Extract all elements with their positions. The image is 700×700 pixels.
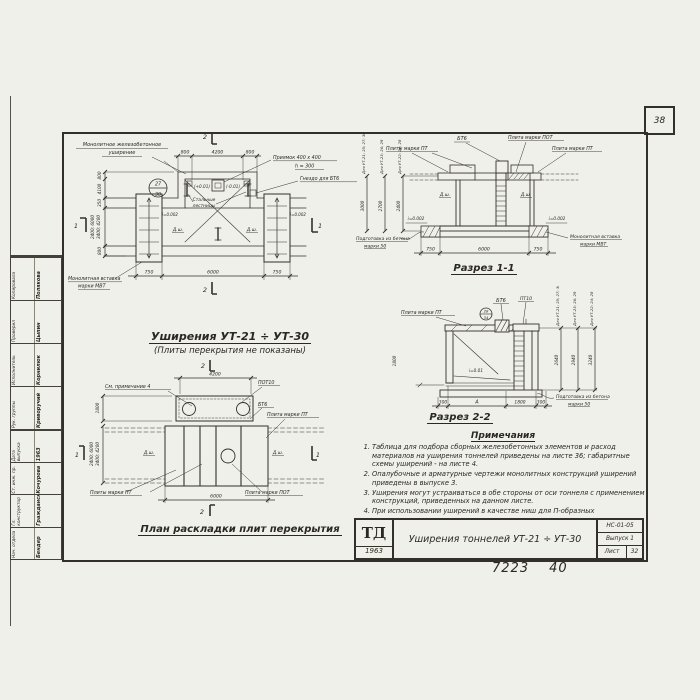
detail-callout-top: 28	[484, 309, 489, 314]
note-text: Таблица для подбора сборных железобетонн…	[372, 443, 646, 469]
label-concrete-prep-line2: марки 50	[568, 402, 590, 408]
label-pit: Приямок 400 х 400	[273, 155, 321, 161]
label-steel-ladders-line2: лестницы	[192, 204, 216, 209]
section-mark-1-left: 1	[75, 451, 79, 459]
notes-title: Примечания	[360, 431, 646, 441]
stamp-lower-block: Нач. отдела Бендер Гл. конструктор Гражд…	[11, 429, 61, 559]
section-mark-2-top: 2	[203, 133, 207, 141]
stamp-cell: Проверил Цыпин	[11, 300, 61, 343]
height-value-3: 2400	[396, 200, 401, 211]
label-steel-ladders-line1: Стальные	[193, 197, 216, 203]
label-slabs-pt: Плиты марки ПТ	[90, 490, 133, 496]
dim-left-800a: 800	[97, 171, 102, 179]
plan-top-title: Уширения УТ-21 ÷ УТ-30	[130, 330, 330, 343]
title-block-codes: НС-01-05 Выпуск 1 Лист 32	[598, 520, 642, 558]
slope-label: i=0.01	[469, 368, 483, 373]
detail-callout-bottom: 34	[484, 315, 489, 320]
stamp-name: Полякова	[35, 258, 61, 300]
note-text: Опалубочные и арматурные чертежи монолит…	[372, 470, 646, 487]
label-see-note-4: См. примечание 4	[105, 384, 150, 390]
section-2-2-title: Разрез 2-2	[410, 412, 510, 423]
title-block: ТД 1963 Уширения тоннелей УТ-21 ÷ УТ-30 …	[354, 518, 644, 560]
slab-layout-plan-drawing: См. примечание 4 4200 ПОТ10 БТ6 Плита ма…	[70, 358, 366, 520]
stamp-role: Исполнитель	[11, 344, 35, 386]
section-1-1-drawing: БТ6 Плита марки ПОТ Плиты марки ПТ Плита…	[356, 128, 648, 278]
dim-tunnel-width-b: 3400; 4200	[96, 215, 101, 239]
sheet-corner-number-box: 38	[644, 106, 675, 135]
dim-left-height: 1800	[392, 355, 397, 366]
height-option-label-3: Для УТ-22; 24; 28	[589, 291, 594, 327]
label-monolithic-insert-line2: марки МВТ	[78, 284, 107, 290]
section-mark-1-right: 1	[316, 451, 320, 459]
drawing-title: Уширения тоннелей УТ-21 ÷ УТ-30	[394, 520, 598, 558]
dim-tunnel-width-a: 2400; 6000	[89, 442, 94, 466]
section-mark-1-right: 1	[318, 222, 322, 230]
label-socket-bt6: Гнездо для БТ6	[300, 176, 339, 182]
dim-top-800-right: 800	[246, 149, 255, 155]
stamp-name: Гражданский	[35, 496, 61, 527]
deformation-joint-left: Д.ш.	[172, 227, 183, 233]
dim-750-left: 750	[426, 247, 435, 253]
monolithic-insert-right-plan	[264, 194, 290, 262]
dim-750-right: 750	[534, 247, 543, 253]
label-pt10: ПТ10	[520, 296, 532, 302]
dim-top-4200: 4200	[212, 149, 224, 155]
dim-top-800-left: 800	[181, 149, 190, 155]
plan-top-subtitle: (Плиты перекрытия не показаны)	[120, 346, 340, 356]
dim-tunnel-width-b: 3400; 4200	[95, 442, 100, 466]
dim-bottom-6000: 6000	[207, 269, 219, 275]
height-option-label-1: Для УТ-21; 25; 27; 30	[555, 286, 560, 327]
slope-left: i=0.002	[162, 212, 178, 217]
sheet-number-row: Лист 32	[598, 546, 642, 558]
issue-number: Выпуск 1	[598, 533, 642, 546]
label-slab-pot: Плита марки ПОТ	[508, 135, 554, 141]
stamp-role: Копировала	[11, 258, 35, 300]
section-mark-1-left: 1	[74, 222, 78, 230]
section-2-2-drawing: Плита марки ПТ БТ6 ПТ10 28 34 i=0.01 300…	[356, 286, 648, 426]
label-bt6: БТ6	[457, 136, 467, 142]
deformation-joint-right: Д.ш.	[520, 192, 531, 198]
stamp-role: Рук. группы	[11, 387, 35, 429]
dim-300-right: 300	[537, 400, 546, 406]
slope-right: i=0.002	[290, 212, 306, 217]
corner-number: 38	[654, 116, 665, 126]
height-option-label-2: Для УТ-23; 26; 29	[572, 291, 577, 327]
stamp-role: Ст. инж. пр.	[11, 463, 35, 494]
label-slab-pot: Плита марки ПОТ	[245, 490, 291, 496]
dim-bottom-750-left: 750	[145, 269, 154, 275]
dim-left-800b: 800	[97, 247, 102, 255]
slab-plan-linework	[105, 396, 325, 486]
stamp-cell: Исполнитель Корнилюк	[11, 343, 61, 386]
label-bt6: БТ6	[258, 402, 267, 408]
section1-linework	[406, 161, 578, 237]
stamp-cell: Дата выпуска 1963	[11, 430, 61, 462]
stamp-role: Гл. конструктор	[11, 496, 35, 527]
note-item: 3. Уширения могут устраиваться в обе сто…	[360, 489, 646, 506]
deformation-joint-left: Д.ш.	[439, 192, 450, 198]
footer-code: 7223	[492, 561, 529, 576]
stamp-name: Бендер	[35, 528, 61, 559]
footer-page: 40	[549, 561, 568, 576]
stamp-role: Нач. отдела	[11, 528, 35, 559]
deformation-joint-left: Д.ш.	[143, 450, 154, 456]
height-value-3: 3240	[588, 354, 593, 365]
slab-layout-plan-title: План раскладки плит перекрытия	[115, 524, 365, 535]
stamp-name: Криворучий	[35, 387, 61, 429]
stamp-rotated-content: Нач. отдела Бендер Гл. конструктор Гражд…	[11, 256, 61, 559]
stamp-name: Цыпин	[35, 301, 61, 343]
dim-left-350: 350	[97, 199, 102, 207]
height-value-2: 2940	[571, 354, 576, 365]
dim-A: А	[474, 400, 479, 406]
dim-left-4100: 4100	[97, 183, 102, 194]
stamp-name: Кочурова	[35, 463, 61, 494]
dim-top-4200: 4200	[209, 372, 221, 378]
note-text: Уширения могут устраиваться в обе сторон…	[372, 489, 646, 506]
detail-callout-bottom: 30	[155, 192, 161, 198]
section-mark-2-bottom: 2	[203, 286, 207, 294]
label-slab-pt: Плита марки ПТ	[401, 310, 443, 316]
document-code: НС-01-05	[598, 520, 642, 533]
height-option-label-3: Для УТ-22; 24; 28	[397, 139, 402, 175]
deformation-joint-right: Д.ш.	[272, 450, 283, 456]
deformation-joint-right: Д.ш.	[246, 227, 257, 233]
stamp-cell: Нач. отдела Бендер	[11, 527, 61, 559]
height-value-1: 3000	[360, 200, 365, 211]
height-option-label-2: Для УТ-23; 26; 29	[379, 139, 384, 175]
stamp-name: Корнилюк	[35, 344, 61, 386]
label-monolithic-insert-line2: марки МВТ	[580, 242, 608, 248]
elevation-right: (-0.01)	[226, 184, 240, 189]
label-concrete-prep-line2: марки 50	[364, 244, 386, 250]
note-item: 1. Таблица для подбора сборных железобет…	[360, 443, 646, 469]
slope-left: i=0.002	[408, 216, 425, 221]
dim-1800: 1800	[514, 400, 525, 406]
label-slab-pt: Плита марки ПТ	[267, 412, 309, 418]
label-slab-pt-right: Плита марки ПТ	[552, 146, 594, 152]
dim-left-1800: 1800	[95, 402, 100, 413]
label-concrete-prep-line1: Подготовка из бетона	[356, 236, 410, 242]
stamp-role: Дата выпуска	[11, 431, 35, 462]
label-monolithic-widening-line1: Монолитное железобетонное	[83, 142, 161, 148]
stamp-role: Проверил	[11, 301, 35, 343]
stamp-cell: Ст. инж. пр. Кочурова	[11, 462, 61, 494]
slope-right: i=0.002	[549, 216, 566, 221]
label-pot10: ПОТ10	[258, 380, 274, 386]
stamp-cell: Рук. группы Криворучий	[11, 386, 61, 429]
dim-bottom-750-right: 750	[273, 269, 282, 275]
note-number: 3.	[360, 489, 372, 506]
sheet-label: Лист	[598, 546, 627, 558]
section-mark-2-top: 2	[201, 362, 205, 370]
detail-callout-top: 27	[155, 182, 161, 188]
stamp-name: 1963	[35, 431, 61, 462]
note-number: 1.	[360, 443, 372, 469]
elevation-left: (+0.01)	[194, 184, 210, 189]
section2-linework	[416, 308, 542, 397]
label-bt6: БТ6	[496, 298, 506, 304]
logo-td: ТД	[356, 520, 392, 546]
stamp-cell: Копировала Полякова	[11, 257, 61, 300]
dim-300-left: 300	[439, 400, 448, 406]
notes-block: Примечания 1. Таблица для подбора сборны…	[360, 431, 646, 525]
stamp-upper-block: Рук. группы Криворучий Исполнитель Корни…	[11, 256, 61, 429]
handwritten-footer: 7223 40	[492, 561, 568, 576]
dim-6000: 6000	[478, 247, 490, 253]
label-monolithic-insert-line1: Монолитная вставка	[68, 276, 121, 282]
section-mark-2-bottom: 2	[200, 508, 204, 516]
logo-year: 1963	[356, 546, 392, 558]
plan-widening-drawing: Монолитное железобетонное уширение 2 800…	[66, 128, 384, 318]
dim-bottom-6000: 6000	[210, 494, 222, 500]
stamp-cell: Гл. конструктор Гражданский	[11, 495, 61, 527]
monolithic-insert-left-plan	[136, 194, 162, 262]
dim-tunnel-width-a: 2400; 6000	[90, 215, 95, 239]
label-monolithic-widening-line2: уширение	[108, 150, 136, 156]
height-option-label-1: Для УТ-21; 25; 27; 30	[361, 132, 366, 175]
label-monolithic-insert-line1: Монолитная вставка	[570, 234, 620, 240]
label-concrete-prep-line1: Подготовка из бетона	[556, 394, 610, 400]
note-item: 2. Опалубочные и арматурные чертежи моно…	[360, 470, 646, 487]
label-slabs-pt-left: Плиты марки ПТ	[386, 146, 429, 152]
height-value-2: 2700	[378, 200, 383, 211]
left-signature-stamp: Нач. отдела Бендер Гл. конструктор Гражд…	[10, 255, 62, 560]
label-pit-depth: h = 300	[295, 164, 314, 170]
height-value-1: 2640	[554, 354, 559, 365]
section-1-1-title: Разрез 1-1	[434, 263, 534, 274]
sheet-number: 32	[627, 549, 642, 555]
title-block-logo: ТД 1963	[356, 520, 394, 558]
note-number: 2.	[360, 470, 372, 487]
